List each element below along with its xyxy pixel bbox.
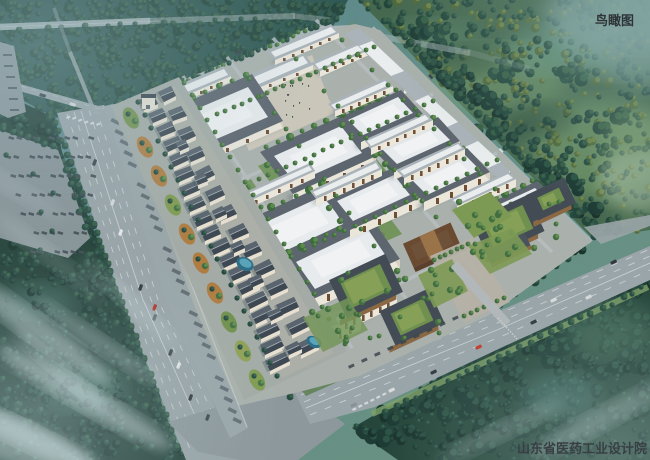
svg-text:鸟瞰图: 鸟瞰图 [595, 13, 634, 28]
svg-text:山东省医药工业设计院: 山东省医药工业设计院 [517, 441, 647, 456]
